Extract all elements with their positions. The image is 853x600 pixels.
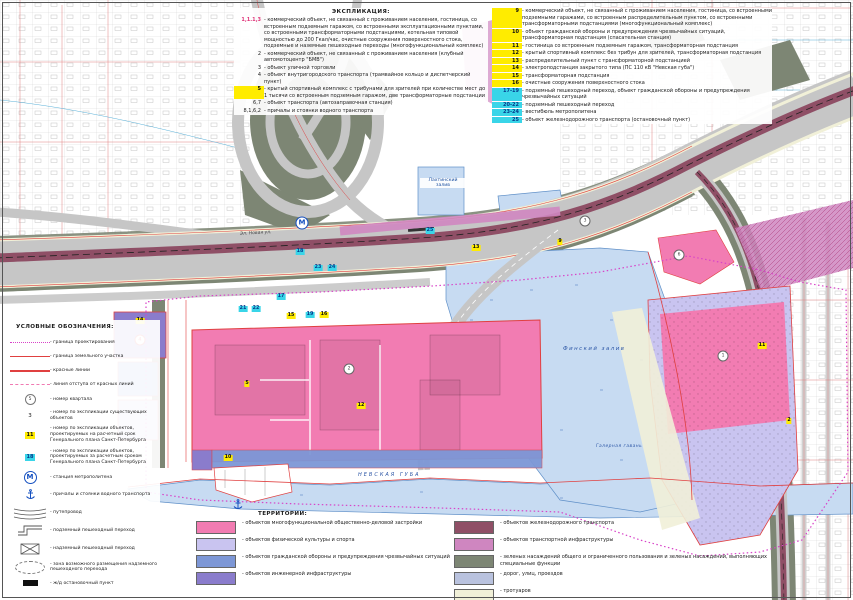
circle-number-icon: 5: [10, 394, 50, 405]
explication-item-number: 15: [492, 73, 522, 80]
explication-item: 2- коммерческий объект, не связанный с п…: [234, 51, 488, 64]
symbol-label: - номер по экспликации существующих объе…: [50, 410, 160, 421]
explication-item-text: - коммерческий объект, не связанный с пр…: [264, 51, 488, 64]
map-marker-11: 11: [758, 343, 767, 349]
territory-color-swatch: [454, 572, 494, 585]
pink-dashed-line-legend-item: - линия отступа от красных линий: [10, 380, 160, 389]
map-marker-22: 22: [252, 306, 261, 312]
territory-label: - тротуаров: [500, 588, 531, 595]
map-marker-15: 15: [287, 313, 296, 319]
explication-item: 11- гостиница со встроенным подземным га…: [492, 43, 772, 50]
territory-label: - объектов транспортной инфраструктуры: [500, 537, 613, 544]
explication-item-text: - подземный пешеходный переход, объект г…: [522, 88, 772, 101]
red-line-icon: [10, 356, 50, 357]
explication-item-number: 2: [234, 51, 264, 64]
symbol-label: - граница проектирования: [50, 340, 160, 346]
territory-color-swatch: [196, 521, 236, 534]
explication-item-number: 23-24: [492, 109, 522, 116]
black-rect-icon: [10, 580, 50, 586]
explication-item-number: 12: [492, 50, 522, 57]
territory-legend-item: - объектов физической культуры и спорта: [196, 537, 454, 551]
plain-number-legend-item: 3- номер по экспликации существующих объ…: [10, 410, 160, 421]
territory-label: - дорог, улиц, проездов: [500, 571, 563, 578]
territory-color-swatch: [454, 538, 494, 551]
explication-item-text: - объект уличной торговли: [264, 65, 488, 72]
map-marker-23: 23: [314, 265, 323, 271]
symbol-label: - номер по экспликации объектов, проекти…: [50, 449, 160, 466]
map-marker-10: 10: [224, 455, 233, 461]
black-rect-legend-item: - ж/д остановочный пункт: [10, 579, 160, 588]
explication-item-number: 6,7: [234, 100, 264, 107]
map-text-label: Эл. Новая ул.: [240, 230, 272, 237]
map-marker-24: 24: [328, 265, 337, 271]
explication-item: 14- электроподстанция закрытого типа (ПС…: [492, 65, 772, 72]
map-marker-16: 16: [320, 312, 329, 318]
map-marker-2: 2: [344, 364, 355, 375]
explication-item-number: 1,1.1,3: [234, 17, 264, 50]
territory-legend-item: - объектов гражданской обороны и предупр…: [196, 554, 454, 568]
map-marker-19: 19: [306, 312, 315, 318]
map-text-label: Финский залив: [563, 346, 625, 352]
symbol-label: - надземный пешеходный переход: [50, 546, 160, 552]
anchor-icon: [10, 489, 50, 501]
explication-item: 16- очистные сооружения поверхностного с…: [492, 80, 772, 87]
boundary-dotted-line-icon: [10, 342, 50, 343]
symbol-label: - ж/д остановочный пункт: [50, 581, 160, 587]
zone-ellipse-icon: [10, 561, 50, 574]
map-marker-17: 17: [277, 294, 286, 300]
territories-legend-title: ТЕРРИТОРИИ:: [258, 511, 772, 517]
explication-item-text: - крытый спортивный комплекс с трибунами…: [264, 86, 488, 99]
explication-item-text: - причалы и стоянки водного транспорта: [264, 108, 488, 115]
red-thick-line-icon: [10, 370, 50, 372]
overpass-box-icon: [10, 542, 50, 556]
map-marker-18: 18: [296, 249, 305, 255]
explication-item-text: - коммерческий объект, не связанный с пр…: [522, 8, 772, 28]
explication-item: 23-24- вестибюль метрополитена: [492, 109, 772, 116]
explication-item-text: - объект железнодорожного транспорта (ос…: [522, 117, 772, 124]
red-line-legend-item: - граница земельного участка: [10, 352, 160, 361]
cyan-number-icon: 18: [10, 454, 50, 461]
anchor-legend-item: - причалы и стоянки водного транспорта: [10, 489, 160, 501]
map-marker-2: 2: [786, 418, 791, 424]
territory-legend-item: - объектов транспортной инфраструктуры: [454, 537, 772, 551]
symbols-legend: УСЛОВНЫЕ ОБОЗНАЧЕНИЯ: - граница проектир…: [8, 320, 160, 597]
symbol-label: - номер квартала: [50, 397, 160, 403]
explication-item-number: 8,1,6,2: [234, 108, 264, 115]
zone-ellipse-legend-item: - зона возможного размещения надземного …: [10, 561, 160, 574]
symbol-label: - граница земельного участка: [50, 354, 160, 360]
explication-item-number: 9: [492, 8, 522, 28]
red-thick-line-legend-item: - красные линии: [10, 366, 160, 375]
boundary-dotted-line-legend-item: - граница проектирования: [10, 338, 160, 347]
territory-color-swatch: [454, 521, 494, 534]
explication-column-2: 9- коммерческий объект, не связанный с п…: [492, 8, 772, 124]
map-marker-13: 13: [472, 245, 481, 251]
explication-item: 5- крытый спортивный комплекс с трибунам…: [234, 86, 488, 99]
symbol-label: - линия отступа от красных линий: [50, 382, 160, 388]
overpass-arcs-legend-item: - путепровод: [10, 506, 160, 520]
territory-legend-item: - объектов железнодорожного транспорта: [454, 520, 772, 534]
explication-item-number: 5: [234, 86, 264, 99]
symbol-label: - путепровод: [50, 510, 160, 516]
map-marker-5: 5: [244, 381, 249, 387]
explication-item-number: 25: [492, 117, 522, 124]
explication-item-text: - электроподстанция закрытого типа (ПС 1…: [522, 65, 772, 72]
map-marker-6: 6: [674, 250, 685, 261]
territory-label: - зеленых насаждений общего и ограниченн…: [500, 554, 772, 567]
metro-legend-item: М- станция метрополитена: [10, 471, 160, 484]
territory-label: - объектов гражданской обороны и предупр…: [242, 554, 450, 561]
explication-item: 13- распределительный пункт с трансформа…: [492, 58, 772, 65]
underpass-legend-item: - подземный пешеходный переход: [10, 525, 160, 537]
territory-color-swatch: [454, 589, 494, 600]
explication-item-number: 11: [492, 43, 522, 50]
explication-item-text: - трансформаторная подстанция: [522, 73, 772, 80]
explication-column-1: ЭКСПЛИКАЦИЯ: 1,1.1,3- коммерческий объек…: [234, 8, 488, 115]
overpass-arcs-icon: [10, 506, 50, 520]
explication-item-text: - объект транспорта (автозаправочная ста…: [264, 100, 488, 107]
symbols-legend-title: УСЛОВНЫЕ ОБОЗНАЧЕНИЯ:: [16, 324, 160, 330]
explication-item-text: - подземный пешеходный переход: [522, 102, 772, 109]
explication-item: 15- трансформаторная подстанция: [492, 73, 772, 80]
map-text-label: НЕВСКАЯ ГУБА: [358, 472, 421, 478]
explication-item: 10- объект гражданской обороны и предупр…: [492, 29, 772, 42]
explication-item-text: - коммерческий объект, не связанный с пр…: [264, 17, 488, 50]
explication-item: 17-19- подземный пешеходный переход, объ…: [492, 88, 772, 101]
yellow-number-legend-item: 11- номер по экспликации объектов, проек…: [10, 426, 160, 443]
explication-item: 12- крытый спортивный комплекс без трибу…: [492, 50, 772, 57]
symbol-label: - номер по экспликации объектов, проекти…: [50, 426, 160, 443]
cyan-number-legend-item: 18- номер по экспликации объектов, проек…: [10, 449, 160, 466]
explication-item-text: - распределительный пункт с трансформато…: [522, 58, 772, 65]
map-marker-21: 21: [239, 306, 248, 312]
map-marker-25: 25: [426, 228, 435, 234]
explication-item-number: 14: [492, 65, 522, 72]
explication-item-number: 10: [492, 29, 522, 42]
metro-station-icon: М: [296, 217, 309, 230]
territory-legend-item: - тротуаров: [454, 588, 772, 600]
explication-item: 4- объект внутригородского транспорта (т…: [234, 72, 488, 85]
explication-item-text: - крытый спортивный комплекс без трибун …: [522, 50, 772, 57]
explication-item-number: 3: [234, 65, 264, 72]
explication-item: 9- коммерческий объект, не связанный с п…: [492, 8, 772, 28]
territory-color-swatch: [196, 538, 236, 551]
explication-item: 1,1.1,3- коммерческий объект, не связанн…: [234, 17, 488, 50]
territory-legend-item: - объектов инженерной инфраструктуры: [196, 571, 454, 585]
explication-item-text: - вестибюль метрополитена: [522, 109, 772, 116]
map-text-label: Галерная гавань: [596, 444, 642, 449]
yellow-number-icon: 11: [10, 432, 50, 439]
symbol-label: - станция метрополитена: [50, 475, 160, 481]
map-marker-3: 3: [580, 216, 591, 227]
explication-item-number: 20-22: [492, 102, 522, 109]
symbol-label: - красные линии: [50, 368, 160, 374]
map-marker-12: 12: [357, 403, 366, 409]
territory-legend-item: - зеленых насаждений общего и ограниченн…: [454, 554, 772, 568]
map-text-label: Лахтинский залив: [420, 178, 466, 188]
explication-item: 6,7- объект транспорта (автозаправочная …: [234, 100, 488, 107]
territory-color-swatch: [196, 555, 236, 568]
explication-item-text: - объект внутригородского транспорта (тр…: [264, 72, 488, 85]
explication-item-text: - очистные сооружения поверхностного сто…: [522, 80, 772, 87]
explication-item-number: 17-19: [492, 88, 522, 101]
territory-legend-item: - объектов многофункциональной обществен…: [196, 520, 454, 534]
map-marker-9: 9: [557, 239, 562, 245]
underpass-icon: [10, 525, 50, 537]
symbol-label: - зона возможного размещения надземного …: [50, 562, 160, 573]
explication-item: 8,1,6,2- причалы и стоянки водного транс…: [234, 108, 488, 115]
territories-legend: ТЕРРИТОРИИ: - объектов многофункциональн…: [196, 509, 772, 600]
circle-number-legend-item: 5- номер квартала: [10, 394, 160, 405]
explication-item: 25- объект железнодорожного транспорта (…: [492, 117, 772, 124]
symbol-label: - причалы и стоянки водного транспорта: [50, 492, 160, 498]
pink-dashed-line-icon: [10, 384, 50, 385]
explication-item-text: - гостиница со встроенным подземным гара…: [522, 43, 772, 50]
territory-legend-item: - дорог, улиц, проездов: [454, 571, 772, 585]
plan-sheet: 14452121015191617182324212225139361112МЭ…: [0, 0, 853, 600]
explication-item-text: - объект гражданской обороны и предупреж…: [522, 29, 772, 42]
symbol-label: - подземный пешеходный переход: [50, 528, 160, 534]
overpass-box-legend-item: - надземный пешеходный переход: [10, 542, 160, 556]
territory-label: - объектов инженерной инфраструктуры: [242, 571, 351, 578]
map-marker-1: 1: [718, 351, 729, 362]
explication-item-number: 13: [492, 58, 522, 65]
territory-label: - объектов физической культуры и спорта: [242, 537, 355, 544]
territory-color-swatch: [454, 555, 494, 568]
territory-label: - объектов железнодорожного транспорта: [500, 520, 614, 527]
territory-label: - объектов многофункциональной обществен…: [242, 520, 422, 527]
explication-item-number: 4: [234, 72, 264, 85]
territory-color-swatch: [196, 572, 236, 585]
plain-number-icon: 3: [10, 413, 50, 419]
explication-title: ЭКСПЛИКАЦИЯ:: [234, 9, 488, 15]
explication-item-number: 16: [492, 80, 522, 87]
explication-item: 3- объект уличной торговли: [234, 65, 488, 72]
metro-icon: М: [10, 471, 50, 484]
explication-item: 20-22- подземный пешеходный переход: [492, 102, 772, 109]
